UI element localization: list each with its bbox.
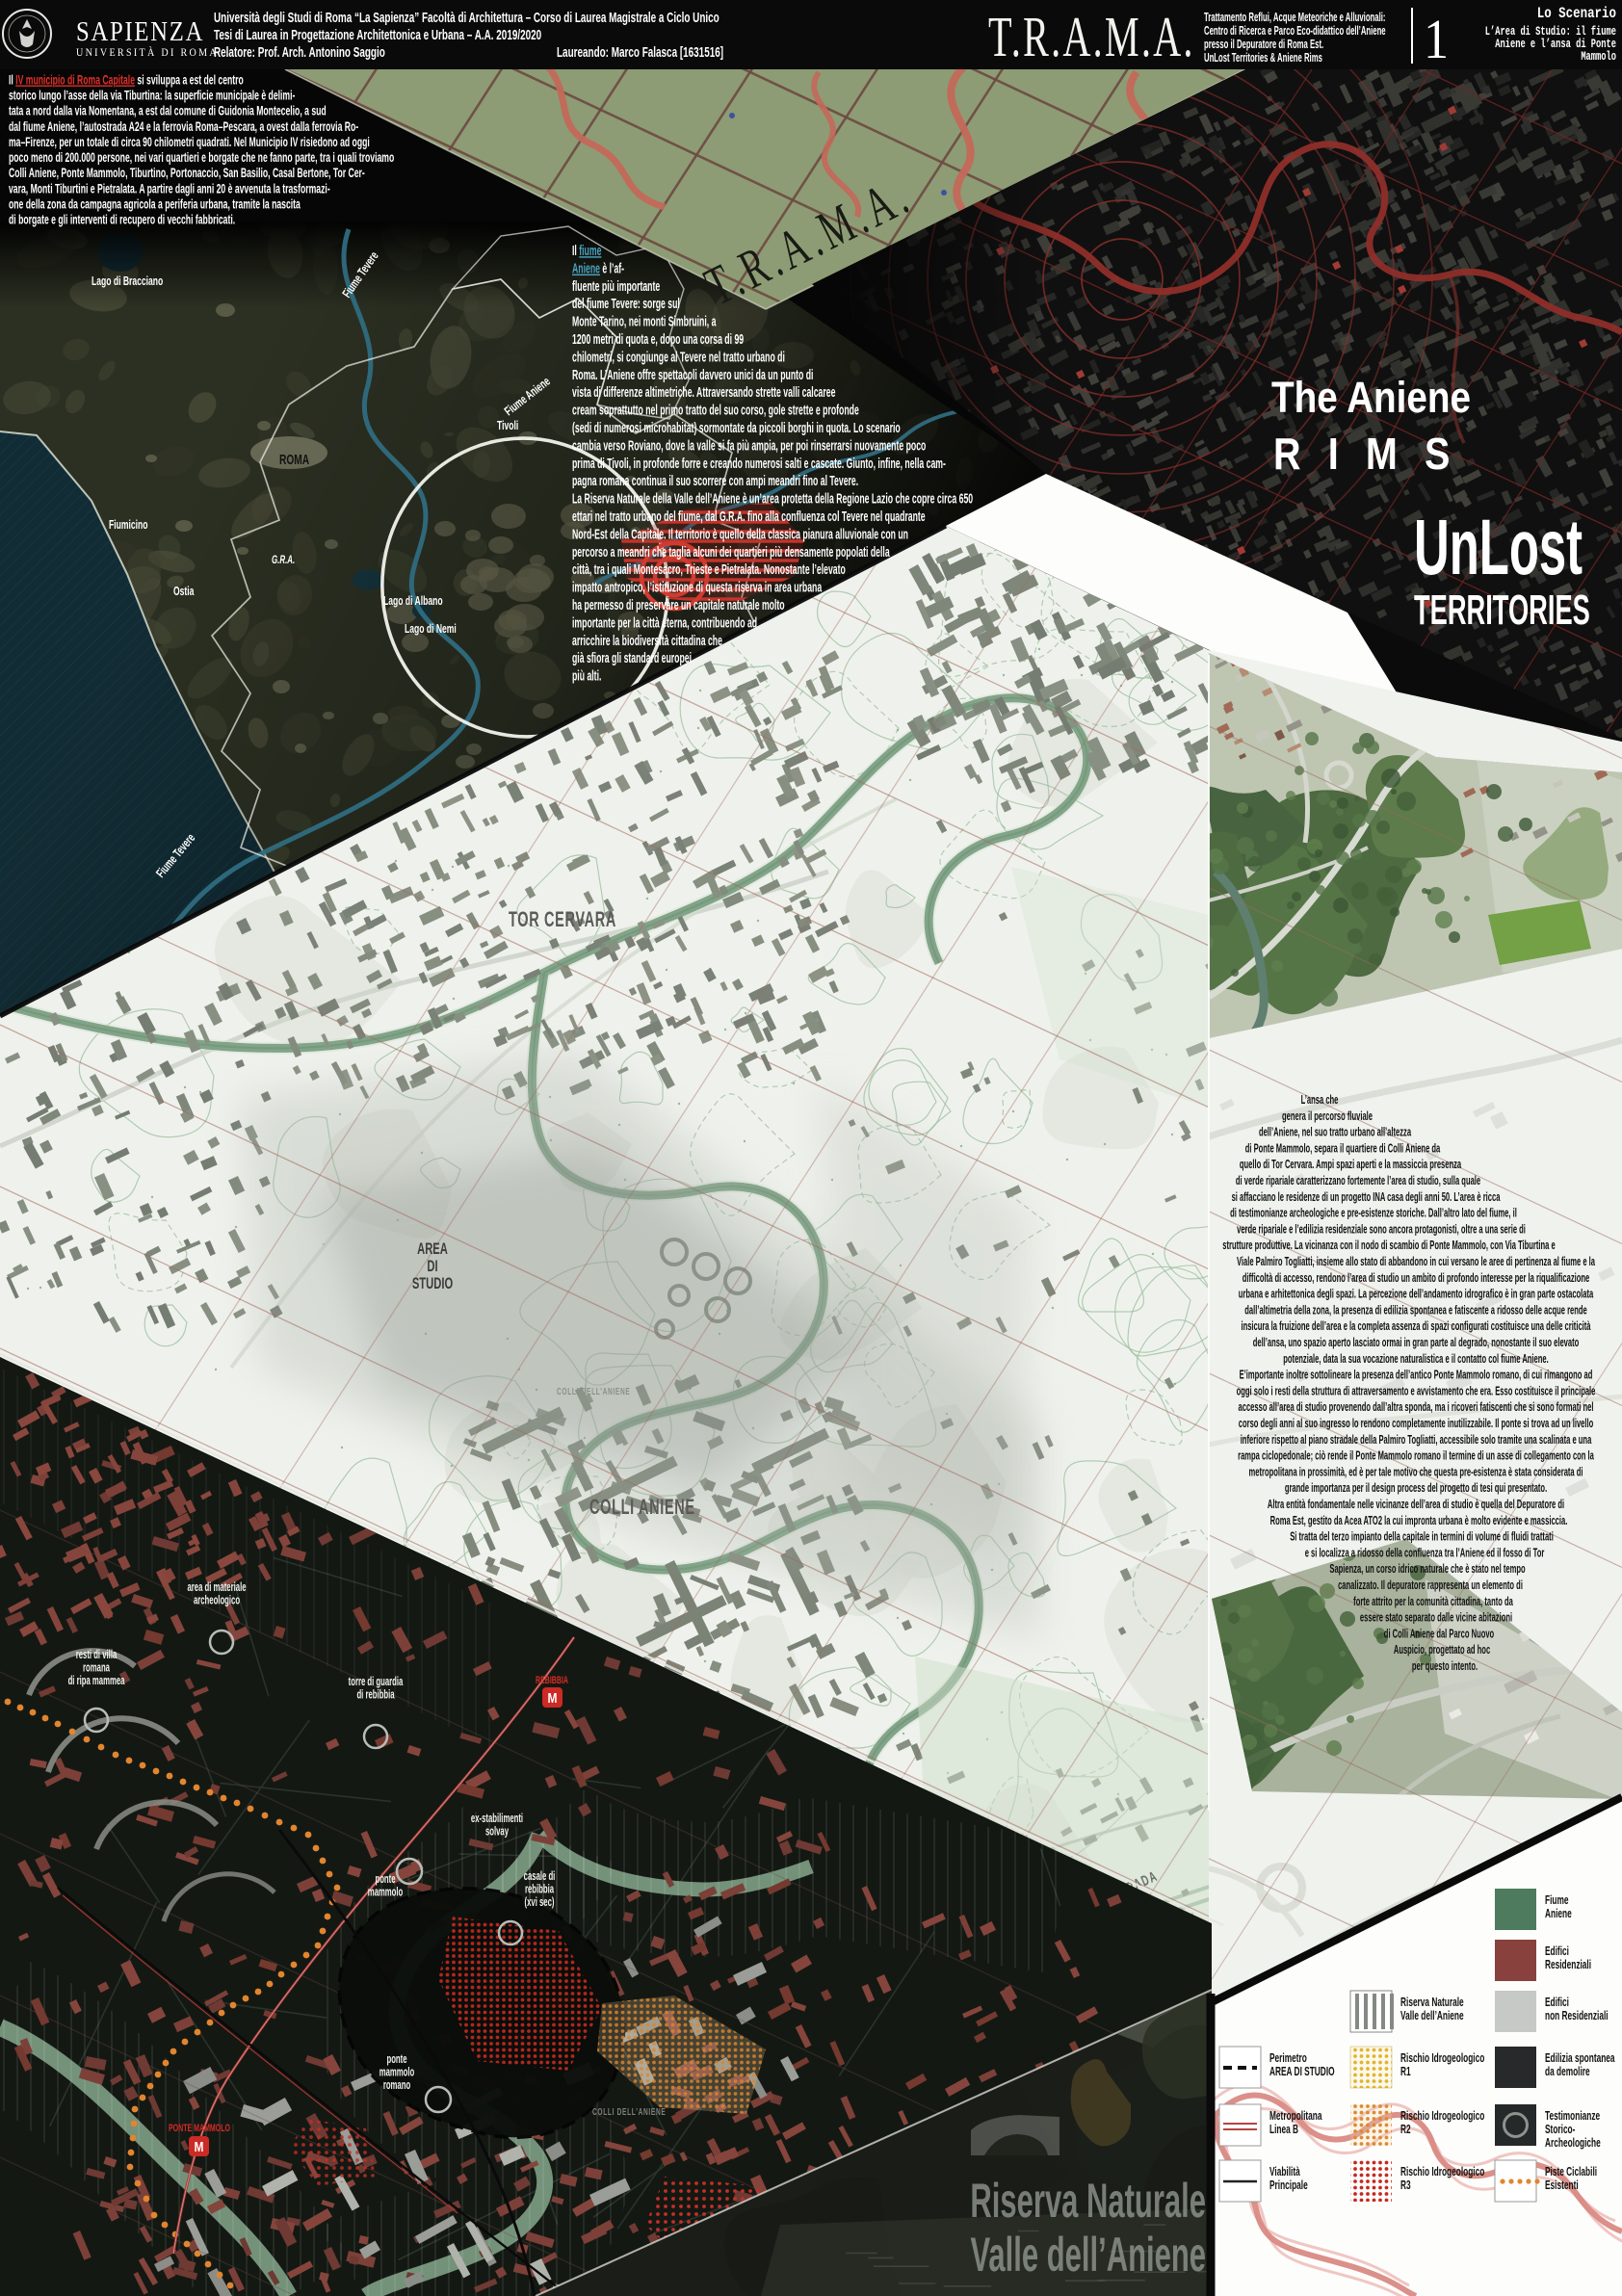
svg-text:Sapienza, un corso idrico natu: Sapienza, un corso idrico naturale che è… — [1329, 1562, 1526, 1577]
svg-text:DI: DI — [427, 1258, 437, 1276]
svg-text:Storico-: Storico- — [1545, 2123, 1576, 2136]
svg-text:Relatore: Prof. Arch. Antonino: Relatore: Prof. Arch. Antonino Saggio — [214, 44, 385, 60]
svg-text:pagna romana continua il suo s: pagna romana continua il suo scorrere co… — [572, 473, 858, 489]
svg-text:R I M S: R I M S — [1273, 430, 1458, 479]
svg-text:UNIVERSITÀ DI ROMA: UNIVERSITÀ DI ROMA — [76, 46, 219, 59]
svg-text:del fiume Tevere: sorge sul: del fiume Tevere: sorge sul — [572, 296, 680, 312]
svg-text:Fiumicino: Fiumicino — [109, 518, 148, 532]
svg-text:percorso a meandri che taglia: percorso a meandri che taglia alcuni dei… — [572, 543, 890, 560]
svg-text:STUDIO: STUDIO — [412, 1275, 453, 1293]
svg-text:Edilizia spontanea: Edilizia spontanea — [1545, 2051, 1615, 2065]
svg-text:dell’Aniene, nel suo tratto ur: dell’Aniene, nel suo tratto urbano all’a… — [1259, 1126, 1411, 1140]
svg-text:metropolitana in prossimità, e: metropolitana in prossimità, ed è per ta… — [1248, 1465, 1583, 1479]
svg-text:TERRITORIES: TERRITORIES — [1414, 586, 1590, 633]
svg-text:Testimonianze: Testimonianze — [1545, 2109, 1600, 2123]
svg-text:Ostia: Ostia — [173, 585, 195, 598]
svg-text:Valle dell’Aniene: Valle dell’Aniene — [1400, 2009, 1464, 2022]
svg-text:accesso all’area di studio pro: accesso all’area di studio provenendo da… — [1239, 1400, 1594, 1415]
svg-text:mammolo: mammolo — [379, 2067, 415, 2079]
svg-text:impatto antropico, l’istituzio: impatto antropico, l’istituzione di ques… — [572, 579, 822, 595]
svg-text:cream soprattutto nel primo tr: cream soprattutto nel primo tratto del s… — [572, 402, 859, 418]
svg-text:COLLI DELL’ANIENE: COLLI DELL’ANIENE — [592, 2106, 666, 2118]
svg-text:1200 metri di quota e, dopo un: 1200 metri di quota e, dopo una corsa di… — [572, 331, 744, 348]
svg-text:romano: romano — [383, 2079, 410, 2092]
svg-text:Valle dell’Aniene: Valle dell’Aniene — [970, 2227, 1206, 2281]
svg-text:dall’altimetria della zona, la: dall’altimetria della zona, la presenza … — [1244, 1303, 1587, 1318]
svg-text:ha permesso di preservare un c: ha permesso di preservare un capitale na… — [572, 597, 785, 613]
svg-text:Mammolo: Mammolo — [1581, 51, 1616, 65]
svg-text:romana: romana — [83, 1662, 110, 1675]
svg-text:Lago di Albano: Lago di Albano — [383, 594, 443, 608]
svg-text:grande importanza per il desig: grande importanza per il design process … — [1285, 1481, 1547, 1496]
svg-text:Esistenti: Esistenti — [1545, 2179, 1579, 2192]
svg-text:torre di guardia: torre di guardia — [349, 1676, 404, 1688]
svg-text:Auspicio, progettato ad hoc: Auspicio, progettato ad hoc — [1394, 1643, 1490, 1657]
svg-text:PONTE MAMMOLO: PONTE MAMMOLO — [169, 2122, 230, 2133]
svg-text:Lago di Nemi: Lago di Nemi — [405, 622, 457, 636]
svg-text:canalizzato. Il depuratore rap: canalizzato. Il depuratore rappresenta u… — [1338, 1578, 1523, 1593]
svg-text:Aniene: Aniene — [1545, 1907, 1572, 1920]
svg-text:di rebibbia: di rebibbia — [356, 1689, 394, 1702]
svg-text:(xvi sec): (xvi sec) — [525, 1896, 555, 1909]
svg-text:Edifici: Edifici — [1545, 1944, 1569, 1958]
svg-text:M: M — [548, 1690, 558, 1707]
svg-text:ex-stabilimenti: ex-stabilimenti — [471, 1813, 523, 1825]
svg-text:città, tra i quali Montesacro,: città, tra i quali Montesacro, Trieste e… — [572, 561, 846, 578]
svg-text:fluente più importante: fluente più importante — [572, 277, 660, 294]
svg-text:Si tratta del terzo impianto d: Si tratta del terzo impianto della capit… — [1290, 1530, 1554, 1545]
svg-text:dell’ansa, uno spazio aperto l: dell’ansa, uno spazio aperto lasciato or… — [1253, 1336, 1580, 1350]
svg-text:E’importante inoltre sottoline: E’importante inoltre sottolineare la pre… — [1240, 1369, 1593, 1383]
svg-text:quello di Tor Cervara. Ampi sp: quello di Tor Cervara. Ampi spazi aperti… — [1240, 1158, 1461, 1172]
svg-text:insicura la fruizione dell’are: insicura la fruizione dell’area e la com… — [1241, 1319, 1590, 1334]
svg-text:mammolo: mammolo — [368, 1887, 404, 1899]
svg-text:R1: R1 — [1400, 2065, 1411, 2078]
svg-text:Aniene e l’ansa di Ponte: Aniene e l’ansa di Ponte — [1495, 39, 1616, 52]
svg-text:genera il percorso fluviale: genera il percorso fluviale — [1282, 1109, 1373, 1124]
svg-text:di ripa mammea: di ripa mammea — [68, 1675, 125, 1687]
svg-text:forte attrito per la comunità: forte attrito per la comunità cittadina,… — [1353, 1595, 1513, 1609]
svg-text:corso degli anni al suo ingres: corso degli anni al suo ingresso lo rend… — [1239, 1417, 1594, 1431]
svg-text:di verde ripariale caratterizz: di verde ripariale caratterizzano fortem… — [1236, 1174, 1480, 1188]
svg-text:e si localizza a ridosso della: e si localizza a ridosso della confluenz… — [1305, 1546, 1545, 1560]
svg-text:Riserva Naturale: Riserva Naturale — [970, 2173, 1206, 2227]
svg-text:Archeologiche: Archeologiche — [1545, 2136, 1601, 2150]
svg-text:Piste Ciclabili: Piste Ciclabili — [1545, 2165, 1597, 2179]
svg-text:potenziale, data la sua vocazi: potenziale, data la sua vocazione natura… — [1283, 1352, 1548, 1367]
svg-text:ponte: ponte — [375, 1873, 395, 1886]
svg-text:AREA DI STUDIO: AREA DI STUDIO — [1269, 2065, 1335, 2078]
svg-text:più alti.: più alti. — [572, 667, 601, 684]
svg-text:poco meno di 200.000 persone,: poco meno di 200.000 persone, nei vari q… — [9, 151, 394, 165]
svg-text:Colli Aniene, Ponte Mammolo, T: Colli Aniene, Ponte Mammolo, Tiburtino, … — [9, 167, 365, 180]
svg-text:tata a nord dalla via Nomentan: tata a nord dalla via Nomentana, a est d… — [9, 105, 327, 118]
svg-text:oggi solo i resti della strutt: oggi solo i resti della struttura di att… — [1237, 1384, 1596, 1398]
svg-text:ROMA: ROMA — [279, 451, 309, 468]
svg-text:G.R.A.: G.R.A. — [272, 555, 295, 567]
svg-text:Rischio Idrogeologico: Rischio Idrogeologico — [1400, 2165, 1485, 2179]
svg-text:Perimetro: Perimetro — [1269, 2051, 1307, 2065]
svg-text:verde ripariale e l’edilizia r: verde ripariale e l’edilizia residenzial… — [1237, 1222, 1526, 1237]
svg-text:rampa ciclopedonale; ciò rende: rampa ciclopedonale; ciò rende il Ponte … — [1238, 1449, 1594, 1464]
svg-text:di borgate e gli interventi di: di borgate e gli interventi di recupero … — [9, 214, 235, 227]
svg-text:essere stato separato dalle vi: essere stato separato dalle vicine abita… — [1360, 1611, 1512, 1626]
svg-text:resti di villa: resti di villa — [76, 1649, 118, 1661]
svg-text:presso il Depuratore di Roma E: presso il Depuratore di Roma Est. — [1204, 39, 1323, 51]
svg-text:non Residenziali: non Residenziali — [1545, 2009, 1609, 2022]
svg-text:storico lungo l’asse della via: storico lungo l’asse della via Tiburtina… — [9, 90, 296, 103]
svg-text:per questo intento.: per questo intento. — [1412, 1659, 1478, 1674]
svg-text:SAPIENZA: SAPIENZA — [76, 17, 204, 47]
svg-text:di Ponte Mammolo, separa il qu: di Ponte Mammolo, separa il quartiere di… — [1245, 1141, 1441, 1156]
svg-text:Roma. L’Aniene offre spettacol: Roma. L’Aniene offre spettacoli davvero … — [572, 366, 813, 382]
svg-text:Riserva Naturale: Riserva Naturale — [1400, 1996, 1464, 2009]
svg-text:Metropolitana: Metropolitana — [1269, 2109, 1322, 2123]
svg-text:arricchire la biodiversità cit: arricchire la biodiversità cittadina che — [572, 632, 722, 648]
svg-text:dal fiume Aniene, l’autostrada: dal fiume Aniene, l’autostrada A24 e la … — [9, 120, 358, 134]
svg-text:Il IV municipio di Roma Capita: Il IV municipio di Roma Capitale si svil… — [9, 74, 244, 88]
svg-text:casale di: casale di — [524, 1870, 556, 1883]
svg-text:Edifici: Edifici — [1545, 1996, 1569, 2009]
svg-text:R2: R2 — [1400, 2123, 1411, 2136]
svg-text:ponte: ponte — [386, 2053, 406, 2066]
svg-text:area di materiale: area di materiale — [187, 1581, 246, 1594]
svg-text:UnLost: UnLost — [1414, 504, 1583, 591]
svg-text:Aniene è l’af-: Aniene è l’af- — [572, 260, 624, 276]
svg-text:Fiume: Fiume — [1545, 1893, 1568, 1907]
svg-text:difficoltà di accesso, rendono: difficoltà di accesso, rendono l’area di… — [1243, 1271, 1590, 1286]
svg-text:Nord-Est della Capitale. Il te: Nord-Est della Capitale. Il territorio è… — [572, 526, 908, 542]
svg-text:solvay: solvay — [485, 1826, 509, 1839]
svg-text:TOR CERVARA: TOR CERVARA — [509, 907, 616, 931]
svg-text:Principale: Principale — [1269, 2179, 1308, 2192]
svg-text:si affacciano le residenze di: si affacciano le residenze di un progett… — [1232, 1190, 1501, 1205]
svg-text:Altra entità fondamentale nell: Altra entità fondamentale nelle vicinanz… — [1268, 1498, 1564, 1512]
svg-text:di Colli Aniene dal Parco Nuov: di Colli Aniene dal Parco Nuovo — [1384, 1627, 1495, 1641]
svg-text:strutture produttive. La vicin: strutture produttive. La vicinanza con i… — [1222, 1239, 1555, 1253]
svg-text:La Riserva Naturale della Vall: La Riserva Naturale della Valle dell’Ani… — [572, 490, 973, 507]
svg-text:già sfiora gli standard europe: già sfiora gli standard europei — [572, 650, 692, 666]
svg-text:Linea B: Linea B — [1269, 2123, 1298, 2136]
svg-text:(sedi di numerosi microhabitat: (sedi di numerosi microhabitat) sormonta… — [572, 420, 901, 436]
svg-text:Residenziali: Residenziali — [1545, 1958, 1591, 1971]
svg-text:Trattamento Reflui, Acque Mete: Trattamento Reflui, Acque Meteoriche e A… — [1204, 12, 1385, 24]
svg-text:1: 1 — [1424, 8, 1449, 69]
svg-text:Tivoli: Tivoli — [497, 419, 518, 432]
svg-text:cambia verso Roviano, dove la: cambia verso Roviano, dove la valle si f… — [572, 437, 926, 454]
svg-text:vara, Monti Tiburtini e Pietra: vara, Monti Tiburtini e Pietralata. A pa… — [9, 183, 330, 196]
svg-text:inferiore rispetto al piano st: inferiore rispetto al piano stradale del… — [1241, 1433, 1592, 1448]
svg-text:rebibbia: rebibbia — [525, 1884, 554, 1896]
svg-text:AREA: AREA — [417, 1240, 448, 1259]
svg-text:one della zona da campagna agr: one della zona da campagna agricola a pe… — [9, 198, 301, 212]
svg-text:REBIBBIA: REBIBBIA — [536, 1674, 568, 1685]
svg-text:L’Area di Studio: il fiume: L’Area di Studio: il fiume — [1485, 26, 1616, 39]
svg-text:Rischio Idrogeologico: Rischio Idrogeologico — [1400, 2051, 1485, 2065]
svg-text:prima di Tivoli, in profonde f: prima di Tivoli, in profonde forre e cre… — [572, 455, 946, 471]
svg-text:COLLI DELL’ANIENE: COLLI DELL’ANIENE — [557, 1386, 630, 1397]
svg-text:UnLost Territories & Aniene Ri: UnLost Territories & Aniene Rims — [1204, 52, 1322, 65]
svg-text:T.R.A.M.A.: T.R.A.M.A. — [988, 6, 1195, 68]
svg-text:Università degli Studi di Roma: Università degli Studi di Roma “La Sapie… — [214, 10, 719, 25]
svg-text:importante per la città eterna: importante per la città eterna, contribu… — [572, 614, 757, 631]
svg-text:L’ansa che: L’ansa che — [1301, 1093, 1339, 1108]
svg-text:Viale Palmiro Togliatti, insie: Viale Palmiro Togliatti, insieme allo st… — [1237, 1255, 1595, 1269]
svg-text:Monte Tarino, nei monti Simbru: Monte Tarino, nei monti Simbruini, a — [572, 313, 717, 329]
svg-text:COLLI ANIENE: COLLI ANIENE — [589, 1495, 695, 1519]
svg-text:R3: R3 — [1400, 2179, 1411, 2192]
svg-text:Viabilità: Viabilità — [1269, 2165, 1300, 2179]
svg-text:Centro di Ricerca e Parco Eco-: Centro di Ricerca e Parco Eco-didattico … — [1204, 25, 1386, 38]
svg-text:urbana e arhitettonica degli s: urbana e arhitettonica degli spazi. La p… — [1239, 1288, 1594, 1302]
svg-text:Rischio Idrogeologico: Rischio Idrogeologico — [1400, 2109, 1485, 2123]
svg-text:M: M — [195, 2139, 204, 2155]
svg-text:Laureando: Marco Falasca [1631: Laureando: Marco Falasca [1631516] — [557, 44, 723, 60]
svg-text:archeologico: archeologico — [194, 1595, 240, 1607]
svg-text:ettari nel tratto urbano del f: ettari nel tratto urbano del fiume, dal … — [572, 509, 926, 525]
svg-text:Lo Scenario: Lo Scenario — [1537, 6, 1616, 23]
svg-text:Lago di Bracciano: Lago di Bracciano — [92, 274, 163, 288]
svg-text:Roma Est, gestito da Acea ATO2: Roma Est, gestito da Acea ATO2 la cui im… — [1270, 1514, 1568, 1528]
svg-text:vista di differenze altimetric: vista di differenze altimetriche. Attrav… — [572, 384, 836, 401]
svg-text:da demolire: da demolire — [1545, 2065, 1590, 2078]
svg-text:Tesi di Laurea in Progettazion: Tesi di Laurea in Progettazione Architet… — [214, 27, 541, 42]
svg-text:ma–Firenze, per un totale di c: ma–Firenze, per un totale di circa 90 ch… — [9, 136, 370, 149]
svg-text:di testimonianze archeologiche: di testimonianze archeologiche e pre-esi… — [1230, 1207, 1517, 1221]
svg-text:The Aniene: The Aniene — [1271, 373, 1471, 421]
svg-text:chilometri, si congiunge al Te: chilometri, si congiunge al Tevere nel t… — [572, 349, 785, 365]
svg-text:Il fiume: Il fiume — [572, 243, 602, 259]
